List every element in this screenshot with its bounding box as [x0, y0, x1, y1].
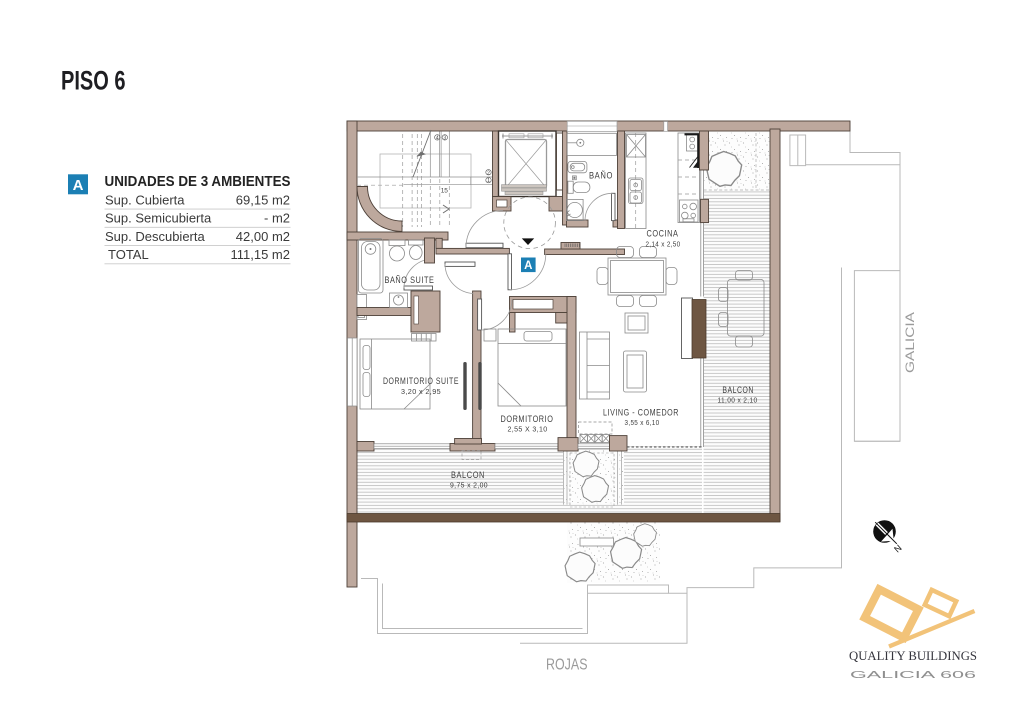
- svg-text:1: 1: [487, 178, 490, 184]
- svg-text:15: 15: [441, 187, 449, 194]
- svg-text:PISO 6: PISO 6: [61, 66, 126, 96]
- svg-text:LIVING - COMEDOR: LIVING - COMEDOR: [603, 408, 679, 418]
- svg-text:QUALITY BUILDINGS: QUALITY BUILDINGS: [849, 648, 977, 663]
- svg-text:111,15 m2: 111,15 m2: [230, 247, 290, 262]
- svg-text:69,15 m2: 69,15 m2: [236, 193, 290, 208]
- svg-text:3,55 x 6,10: 3,55 x 6,10: [625, 418, 660, 427]
- svg-text:TOTAL: TOTAL: [108, 247, 149, 262]
- svg-text:2,55 X 3,10: 2,55 X 3,10: [508, 425, 548, 434]
- svg-text:Sup. Semicubierta: Sup. Semicubierta: [105, 211, 212, 226]
- svg-text:9,75 x 2,00: 9,75 x 2,00: [450, 481, 488, 490]
- svg-text:UNIDADES DE 3 AMBIENTES: UNIDADES DE 3 AMBIENTES: [105, 174, 291, 190]
- svg-text:Sup. Descubierta: Sup. Descubierta: [105, 229, 205, 244]
- svg-text:GALICIA 606: GALICIA 606: [850, 669, 976, 681]
- svg-text:4: 4: [436, 135, 439, 141]
- svg-text:42,00 m2: 42,00 m2: [236, 229, 290, 244]
- svg-text:ROJAS: ROJAS: [546, 657, 588, 674]
- svg-text:3,20 x 2,95: 3,20 x 2,95: [401, 387, 441, 396]
- svg-text:DORMITORIO: DORMITORIO: [501, 414, 554, 424]
- svg-text:COCINA: COCINA: [647, 229, 679, 239]
- svg-text:11,00 x 2,10: 11,00 x 2,10: [718, 396, 758, 405]
- svg-text:2,14 x 2,50: 2,14 x 2,50: [646, 240, 681, 249]
- svg-text:BALCON: BALCON: [451, 470, 485, 480]
- svg-text:BALCON: BALCON: [722, 385, 754, 395]
- svg-text:3: 3: [443, 135, 446, 141]
- svg-text:A: A: [524, 260, 532, 272]
- svg-text:2: 2: [487, 170, 490, 176]
- svg-text:DORMITORIO SUITE: DORMITORIO SUITE: [383, 376, 459, 386]
- svg-text:N: N: [892, 543, 904, 555]
- svg-text:BAÑO: BAÑO: [589, 171, 613, 181]
- svg-text:Sup. Cubierta: Sup. Cubierta: [105, 193, 185, 208]
- svg-text:- m2: - m2: [264, 211, 290, 226]
- svg-text:A: A: [73, 177, 84, 194]
- svg-text:GALICIA: GALICIA: [905, 312, 917, 373]
- svg-text:BAÑO SUITE: BAÑO SUITE: [385, 275, 435, 285]
